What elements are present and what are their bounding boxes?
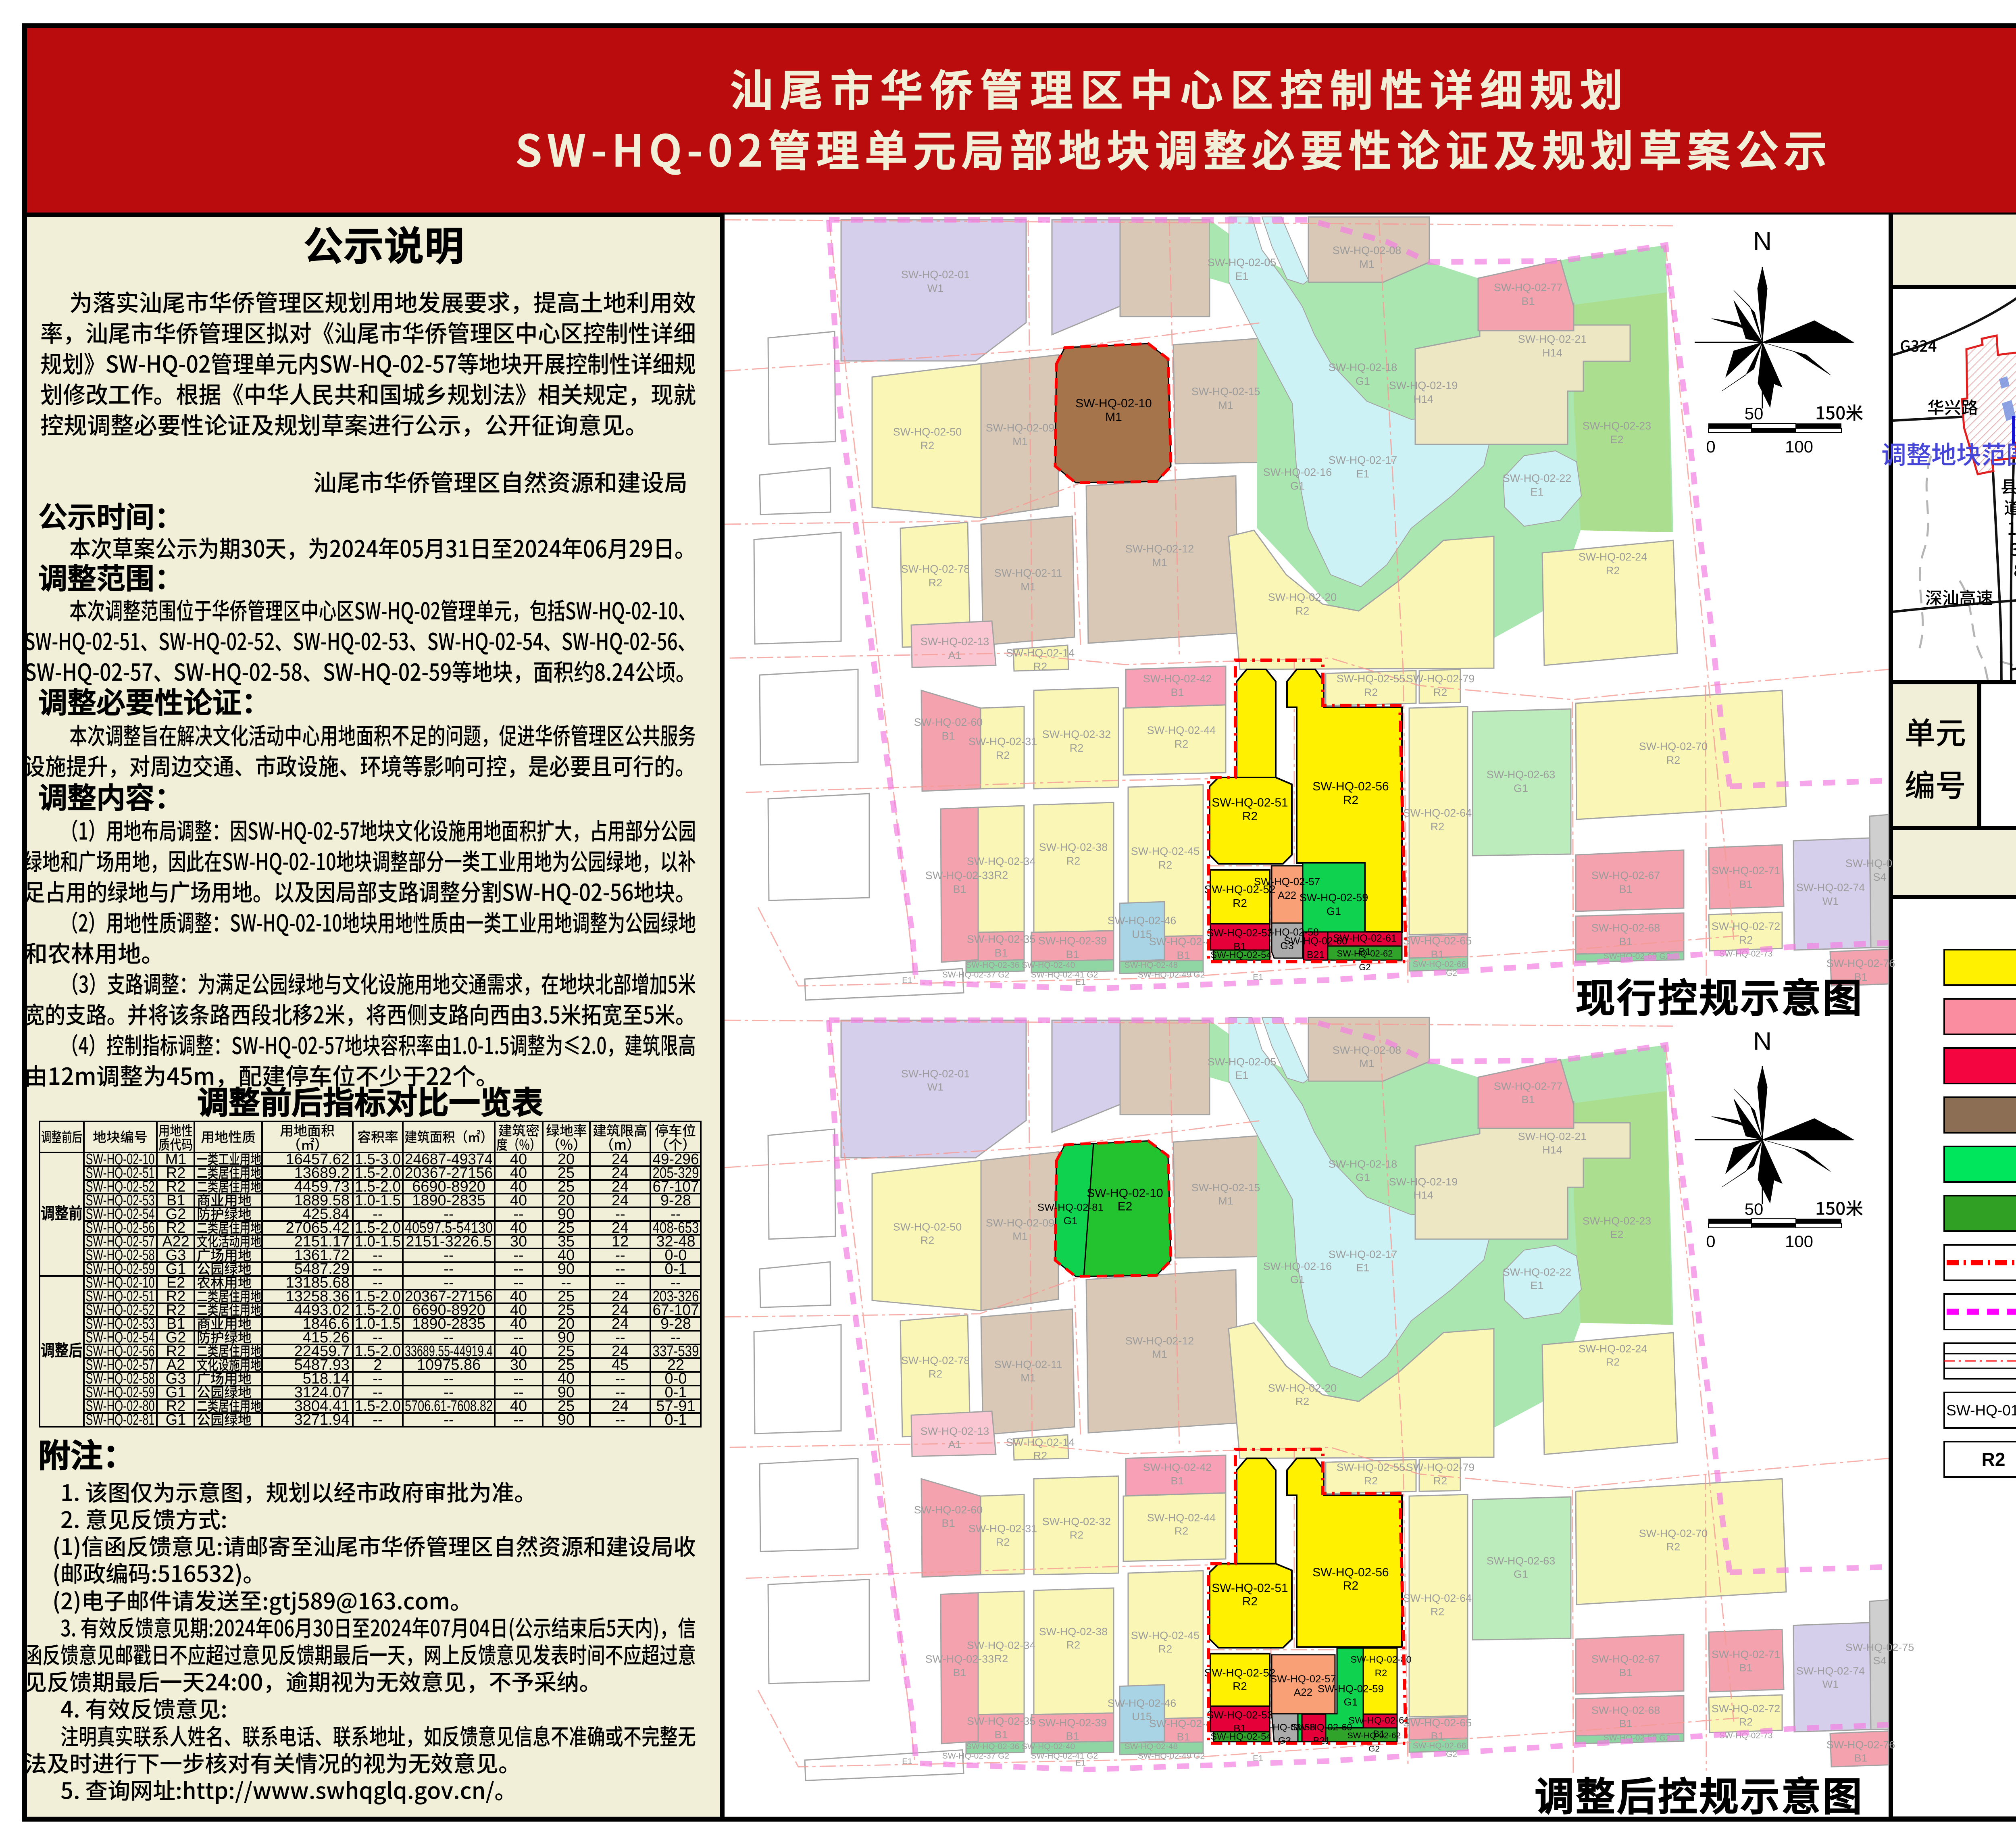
svg-text:G2: G2	[1359, 962, 1370, 972]
svg-text:0-1: 0-1	[665, 1411, 687, 1428]
svg-text:--: --	[444, 1411, 454, 1428]
svg-text:B21: B21	[1307, 949, 1325, 961]
svg-text:SW-HQ-02-51: SW-HQ-02-51	[1212, 1582, 1288, 1595]
svg-text:R2: R2	[1242, 1595, 1258, 1608]
svg-text:G1: G1	[1327, 905, 1341, 917]
svg-text:SW-HQ-02-81: SW-HQ-02-81	[86, 1411, 155, 1428]
svg-text:R2: R2	[1233, 897, 1247, 909]
svg-text:E2: E2	[1118, 1200, 1133, 1213]
svg-text:SW-HQ-02-54: SW-HQ-02-54	[1210, 1732, 1272, 1742]
svg-text:SW-HQ-02-52: SW-HQ-02-52	[1204, 1667, 1276, 1679]
svg-text:G3: G3	[1280, 940, 1293, 952]
svg-text:SW-HQ-02-62: SW-HQ-02-62	[1347, 1731, 1401, 1740]
svg-text:--: --	[373, 1411, 383, 1428]
svg-text:90: 90	[558, 1411, 575, 1428]
svg-text:SW-HQ-02-59: SW-HQ-02-59	[1300, 892, 1368, 904]
svg-text:R2: R2	[1343, 794, 1358, 807]
svg-text:SW-HQ-02-51: SW-HQ-02-51	[1212, 796, 1288, 809]
svg-text:SW-HQ-02-56: SW-HQ-02-56	[1312, 1566, 1389, 1579]
svg-text:R2: R2	[1242, 810, 1258, 823]
svg-text:SW-HQ-02-59: SW-HQ-02-59	[1318, 1684, 1384, 1695]
svg-text:SW-HQ-02-10: SW-HQ-02-10	[1075, 397, 1152, 410]
svg-text:--: --	[513, 1411, 523, 1428]
svg-text:R2: R2	[1375, 1668, 1387, 1679]
svg-text:R2: R2	[1343, 1579, 1358, 1592]
svg-text:SW-HQ-02-10: SW-HQ-02-10	[1087, 1187, 1163, 1200]
svg-text:G2: G2	[1368, 1744, 1380, 1754]
svg-text:SW-HQ-02-54: SW-HQ-02-54	[1210, 950, 1272, 961]
svg-text:A22: A22	[1278, 889, 1296, 901]
svg-text:--: --	[615, 1411, 625, 1428]
svg-text:SW-HQ-02-56: SW-HQ-02-56	[1312, 780, 1389, 793]
svg-text:SW-HQ-02-61: SW-HQ-02-61	[1348, 1715, 1410, 1726]
svg-text:A22: A22	[1294, 1687, 1312, 1698]
svg-text:R2: R2	[1233, 1680, 1247, 1692]
svg-text:SW-HQ-02-61: SW-HQ-02-61	[1333, 933, 1397, 944]
svg-text:SW-HQ-01-01: SW-HQ-01-01	[1946, 1402, 2016, 1419]
svg-text:SW-HQ-02-62: SW-HQ-02-62	[1337, 948, 1393, 959]
svg-text:SW-HQ-02-53: SW-HQ-02-53	[1207, 927, 1273, 939]
svg-text:3271.94: 3271.94	[294, 1411, 350, 1428]
svg-text:R2: R2	[1982, 1449, 2006, 1470]
svg-text:G1: G1	[166, 1411, 186, 1428]
svg-text:SW-HQ-02-81: SW-HQ-02-81	[1037, 1202, 1104, 1213]
svg-text:M1: M1	[1105, 411, 1122, 424]
svg-text:SW-HQ-02-52: SW-HQ-02-52	[1204, 883, 1276, 896]
svg-text:G1: G1	[1064, 1215, 1078, 1227]
svg-text:SW-HQ-02-53: SW-HQ-02-53	[1207, 1710, 1273, 1721]
svg-text:G1: G1	[1344, 1697, 1358, 1708]
